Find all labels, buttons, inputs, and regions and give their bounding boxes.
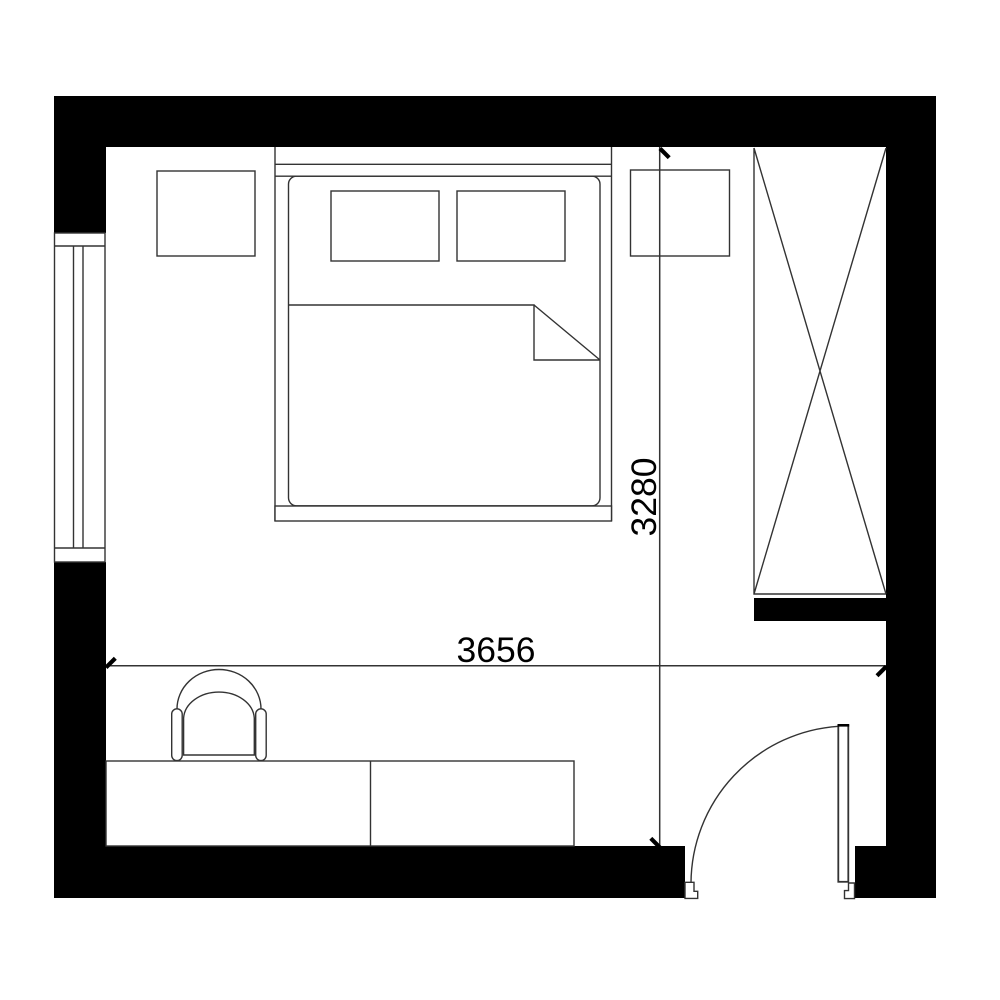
svg-text:3280: 3280: [624, 458, 664, 537]
svg-text:3656: 3656: [457, 630, 536, 670]
